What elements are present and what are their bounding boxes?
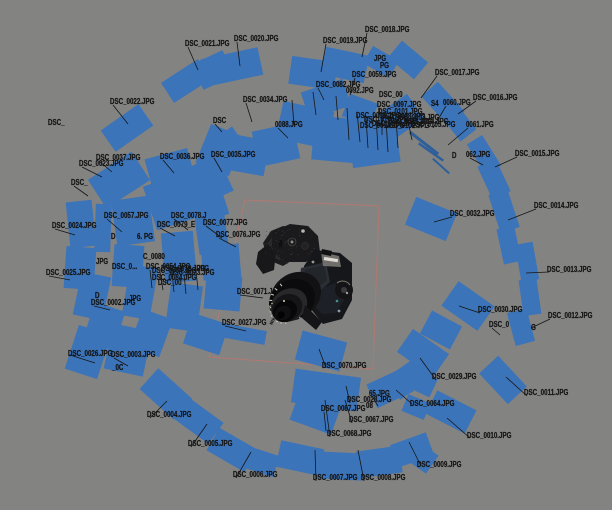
- svg-text:DSC_0010.JPG: DSC_0010.JPG: [467, 431, 511, 440]
- svg-text:DSC_0026.JPG: DSC_0026.JPG: [68, 349, 112, 358]
- svg-text:DSC_0102.JPG: DSC_0102.JPG: [385, 121, 429, 130]
- svg-text:DSC_0005.JPG: DSC_0005.JPG: [188, 439, 232, 448]
- svg-text:DSC_0006.JPG: DSC_0006.JPG: [233, 470, 277, 479]
- svg-text:DSC_0012.JPG: DSC_0012.JPG: [548, 311, 592, 320]
- svg-text:DSC_0016.JPG: DSC_0016.JPG: [473, 93, 517, 102]
- svg-text:DSC_0003.JPG: DSC_0003.JPG: [111, 350, 155, 359]
- svg-text:DSC_0032.JPG: DSC_0032.JPG: [450, 209, 494, 218]
- svg-text:JPG: JPG: [129, 294, 141, 303]
- svg-text:D: D: [111, 232, 116, 241]
- svg-text:DSC_0011.JPG: DSC_0011.JPG: [524, 388, 568, 397]
- svg-text:0088.JPG: 0088.JPG: [275, 120, 303, 129]
- svg-text:DSC_0017.JPG: DSC_0017.JPG: [435, 68, 479, 77]
- svg-text:DSC_0087.JPG: DSC_0087.JPG: [321, 404, 365, 413]
- svg-text:DSC_0004.JPG: DSC_0004.JPG: [147, 410, 191, 419]
- svg-text:DSC_: DSC_: [71, 178, 88, 187]
- svg-text:JPG: JPG: [197, 264, 209, 273]
- svg-text:DSC_0015.JPG: DSC_0015.JPG: [515, 149, 559, 158]
- svg-text:DSC_0035.JPG: DSC_0035.JPG: [211, 150, 255, 159]
- svg-text:DSC_0013.JPG: DSC_0013.JPG: [547, 265, 591, 274]
- svg-text:DSC_0007.JPG: DSC_0007.JPG: [313, 473, 357, 482]
- svg-text:0060.JPG: 0060.JPG: [443, 98, 471, 107]
- svg-text:DSC_0009.JPG: DSC_0009.JPG: [417, 460, 461, 469]
- svg-text:DSC_0068.JPG: DSC_0068.JPG: [327, 429, 371, 438]
- svg-text:DSC_0...: DSC_0...: [112, 262, 137, 271]
- svg-text:DSC_0018.JPG: DSC_0018.JPG: [365, 25, 409, 34]
- svg-text:S4: S4: [431, 99, 439, 108]
- svg-text:DSC_0076.JPG: DSC_0076.JPG: [216, 230, 260, 239]
- svg-text:D: D: [452, 151, 457, 160]
- svg-text:DSC_0021.JPG: DSC_0021.JPG: [185, 39, 229, 48]
- svg-text:DSC_0027.JPG: DSC_0027.JPG: [222, 318, 266, 327]
- svg-text:DSC_0022.JPG: DSC_0022.JPG: [110, 97, 154, 106]
- svg-text:DSC_0036.JPG: DSC_0036.JPG: [160, 152, 204, 161]
- svg-text:6. PG: 6. PG: [137, 232, 153, 241]
- svg-text:C_0080: C_0080: [143, 252, 165, 261]
- svg-text:DSC_0037.JPG: DSC_0037.JPG: [96, 153, 140, 162]
- svg-text:08: 08: [366, 401, 373, 410]
- svg-text:DSC_0079_E: DSC_0079_E: [157, 220, 196, 229]
- svg-text:JPG: JPG: [96, 257, 108, 266]
- svg-text:DSC_0064.JPG: DSC_0064.JPG: [410, 399, 454, 408]
- svg-text:DSC_0030.JPG: DSC_0030.JPG: [478, 305, 522, 314]
- svg-text:DSC_0024.JPG: DSC_0024.JPG: [52, 221, 96, 230]
- svg-text:DSC_0077.JPG: DSC_0077.JPG: [203, 218, 247, 227]
- svg-text:DSC_0057.JPG: DSC_0057.JPG: [104, 211, 148, 220]
- svg-text:DSC_0025.JPG: DSC_0025.JPG: [46, 268, 90, 277]
- svg-text:DSC_0078.J: DSC_0078.J: [171, 211, 206, 220]
- svg-text:062.JPG: 062.JPG: [466, 150, 490, 159]
- svg-text:DSC_0034.JPG: DSC_0034.JPG: [243, 95, 287, 104]
- svg-text:DSC_0008.JPG: DSC_0008.JPG: [361, 473, 405, 482]
- svg-text:DSC_00: DSC_00: [379, 90, 403, 99]
- svg-text:DSC_0059.JPG: DSC_0059.JPG: [352, 70, 396, 79]
- svg-text:0061.JPG: 0061.JPG: [466, 120, 494, 129]
- svg-text:PG: PG: [380, 61, 389, 70]
- svg-text:DSC_0071.J: DSC_0071.J: [237, 287, 272, 296]
- svg-text:G: G: [531, 323, 536, 332]
- svg-text:DSC_0019.JPG: DSC_0019.JPG: [323, 36, 367, 45]
- svg-text:DSC_0067.JPG: DSC_0067.JPG: [349, 415, 393, 424]
- svg-text:_0C: _0C: [111, 363, 123, 372]
- svg-text:DSC_00: DSC_00: [158, 278, 182, 287]
- svg-text:65.JPG: 65.JPG: [369, 389, 390, 398]
- svg-text:0092.JPG: 0092.JPG: [346, 86, 374, 95]
- svg-text:DSC: DSC: [213, 116, 226, 125]
- svg-text:D: D: [95, 291, 100, 300]
- svg-text:DSC_0029.JPG: DSC_0029.JPG: [432, 372, 476, 381]
- svg-text:DSC_0014.JPG: DSC_0014.JPG: [534, 201, 578, 210]
- svg-text:DSC_0: DSC_0: [489, 320, 510, 329]
- svg-text:DSC_: DSC_: [48, 118, 65, 127]
- svg-text:DSC_0070.JPG: DSC_0070.JPG: [322, 361, 366, 370]
- svg-text:DSC_0020.JPG: DSC_0020.JPG: [234, 34, 278, 43]
